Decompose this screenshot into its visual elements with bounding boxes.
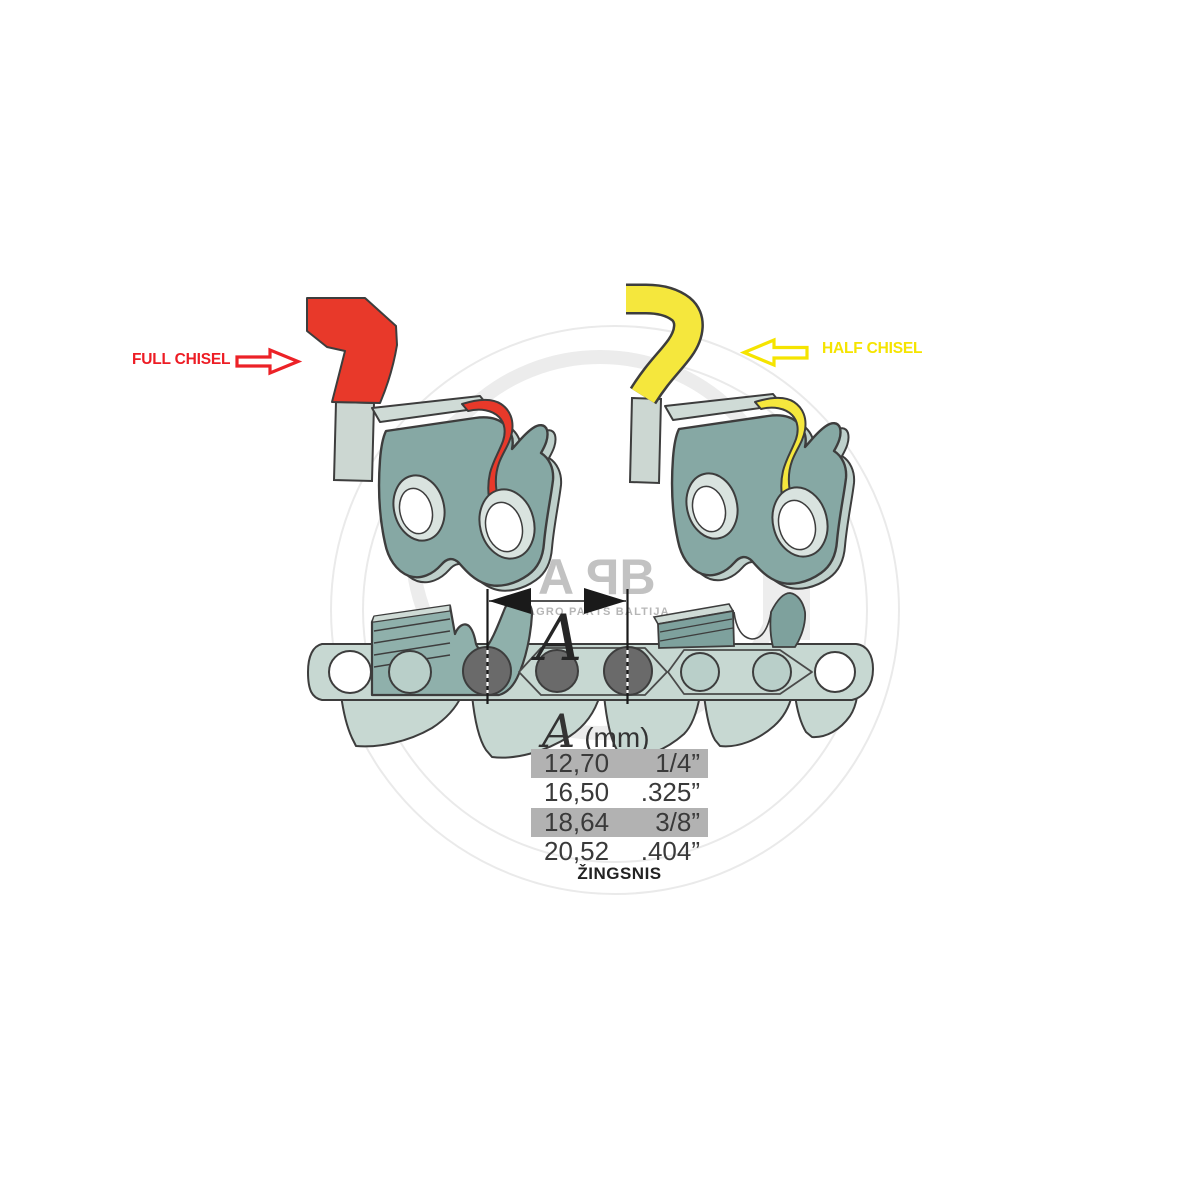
pitch-table-header: A (mm) <box>542 708 650 754</box>
chain-hole <box>389 651 431 693</box>
full-chisel-label: FULL CHISEL <box>132 351 230 369</box>
table-row: 20,52 .404” <box>531 837 708 866</box>
chain-hole-open <box>329 651 371 693</box>
full-chisel-shape <box>307 298 397 403</box>
pitch-inch-value: 1/4” <box>655 748 700 779</box>
pitch-mm-value: 12,70 <box>544 748 609 779</box>
chain-cutter-far <box>654 593 805 648</box>
chainsaw-chain-diagram: APB AGRO PARTS BALTIJA <box>0 0 1188 1188</box>
full-chisel-cutter-link <box>372 396 561 591</box>
chain-hole <box>753 653 791 691</box>
pitch-mm-value: 18,64 <box>544 807 609 838</box>
table-row: 16,50 .325” <box>531 778 708 807</box>
table-row: 18,64 3/8” <box>531 808 708 837</box>
pitch-inch-value: .404” <box>641 836 700 867</box>
arrow-left-outline-icon <box>744 340 807 365</box>
pitch-table-header-letter: A <box>542 708 575 754</box>
dimension-letter: A <box>536 607 582 671</box>
half-chisel-label: HALF CHISEL <box>822 340 922 358</box>
chain-hole-open <box>815 652 855 692</box>
pitch-table: 12,70 1/4” 16,50 .325” 18,64 3/8” 20,52 … <box>531 749 708 866</box>
arrow-right-outline-icon <box>237 350 298 373</box>
half-chisel-stem <box>630 398 661 483</box>
pitch-inch-value: 3/8” <box>655 807 700 838</box>
half-chisel-cutter-link <box>665 394 854 589</box>
cutter-gullet-edge <box>734 612 771 639</box>
chain-hole <box>681 653 719 691</box>
table-row: 12,70 1/4” <box>531 749 708 778</box>
pitch-inch-value: .325” <box>641 777 700 808</box>
chain-illustration <box>0 0 1188 1188</box>
full-chisel-stem <box>334 402 374 481</box>
pitch-caption: ŽINGSNIS <box>531 864 708 884</box>
cutter-horn <box>770 593 805 647</box>
pitch-mm-value: 16,50 <box>544 777 609 808</box>
pitch-mm-value: 20,52 <box>544 836 609 867</box>
